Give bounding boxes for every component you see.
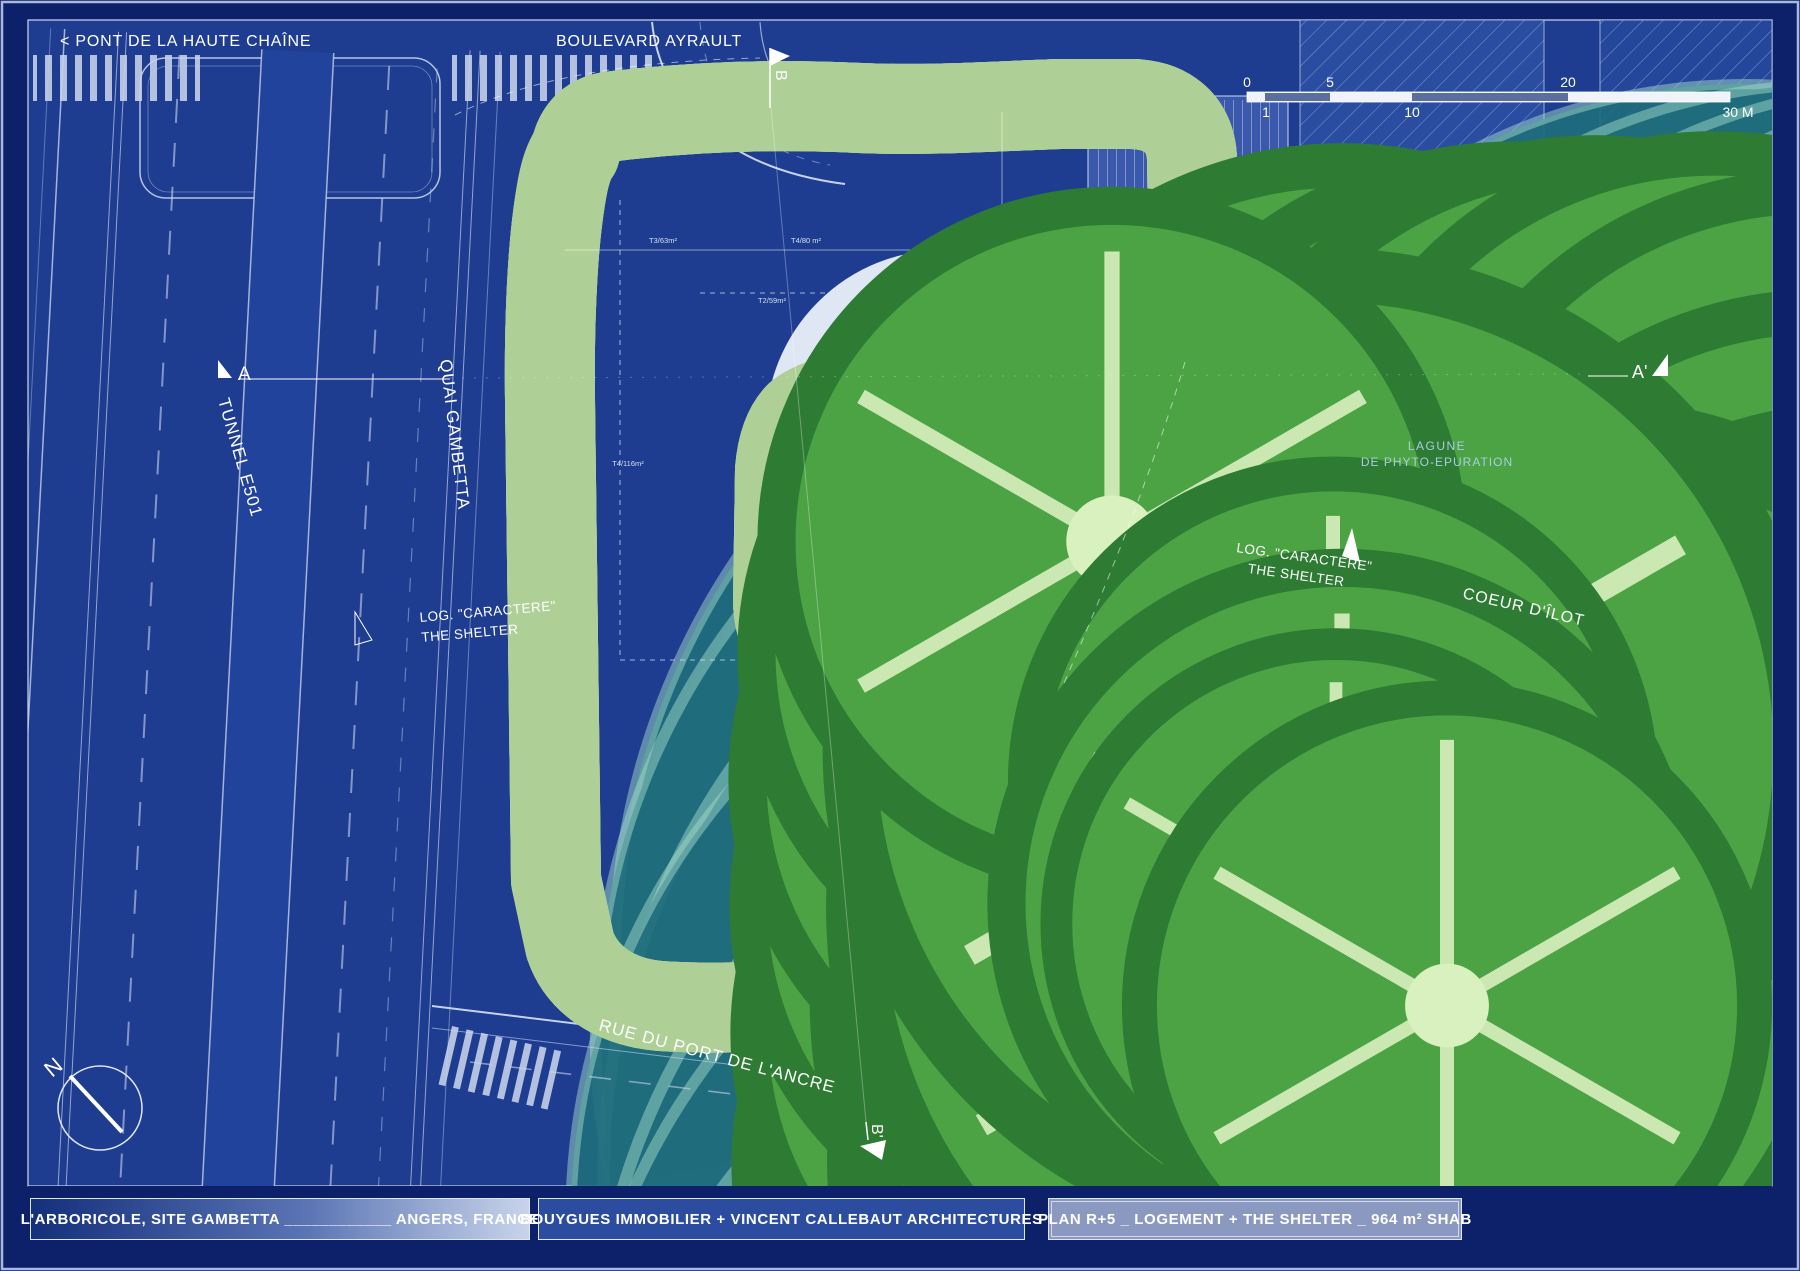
unit-label: T4/116m² [612, 459, 644, 468]
section-label-a-prime: A' [1632, 362, 1647, 382]
scale-tick-label: 1 [1262, 104, 1270, 120]
street-label-pont: < PONT DE LA HAUTE CHAÎNE [60, 31, 311, 50]
section-label-b-prime: B' [868, 1124, 885, 1138]
title-bar: L'ARBORICOLE, SITE GAMBETTA ____________… [0, 1198, 1800, 1250]
scale-tick-label: 5 [1326, 74, 1334, 90]
site-plan-drawing: T3/63m² T4/80 m² 75/105 m² T4/73m² T2/59… [0, 0, 1800, 1271]
unit-label: T4/80 m² [791, 236, 822, 245]
titleblock-client: BOUYGUES IMMOBILIER + VINCENT CALLEBAUT … [538, 1198, 1025, 1240]
tree-ring-building [747, 153, 1800, 1271]
scale-tick-label: 10 [1404, 104, 1420, 120]
scale-tick-label: 20 [1560, 74, 1576, 90]
frame-gap [28, 1186, 1772, 1194]
street-label-boulevard: BOULEVARD AYRAULT [556, 33, 742, 50]
scale-tick-label: 0 [1243, 74, 1251, 90]
section-label-b: B [772, 70, 789, 81]
section-label-a: A [238, 364, 251, 385]
unit-label: T3/63m² [649, 236, 677, 245]
titleblock-sheet: PLAN R+5 _ LOGEMENT + THE SHELTER _ 964 … [1048, 1198, 1462, 1240]
area-label-lagune-2: DE PHYTO-EPURATION [1361, 455, 1513, 469]
tree-icon [1139, 698, 1754, 1271]
titleblock-project: L'ARBORICOLE, SITE GAMBETTA ____________… [30, 1198, 530, 1240]
unit-label: T2/59m² [758, 296, 786, 305]
scale-tick-label: 30 M [1722, 104, 1753, 120]
blueprint-sheet: T3/63m² T4/80 m² 75/105 m² T4/73m² T2/59… [0, 0, 1800, 1271]
area-label-lagune-1: LAGUNE [1408, 439, 1466, 453]
